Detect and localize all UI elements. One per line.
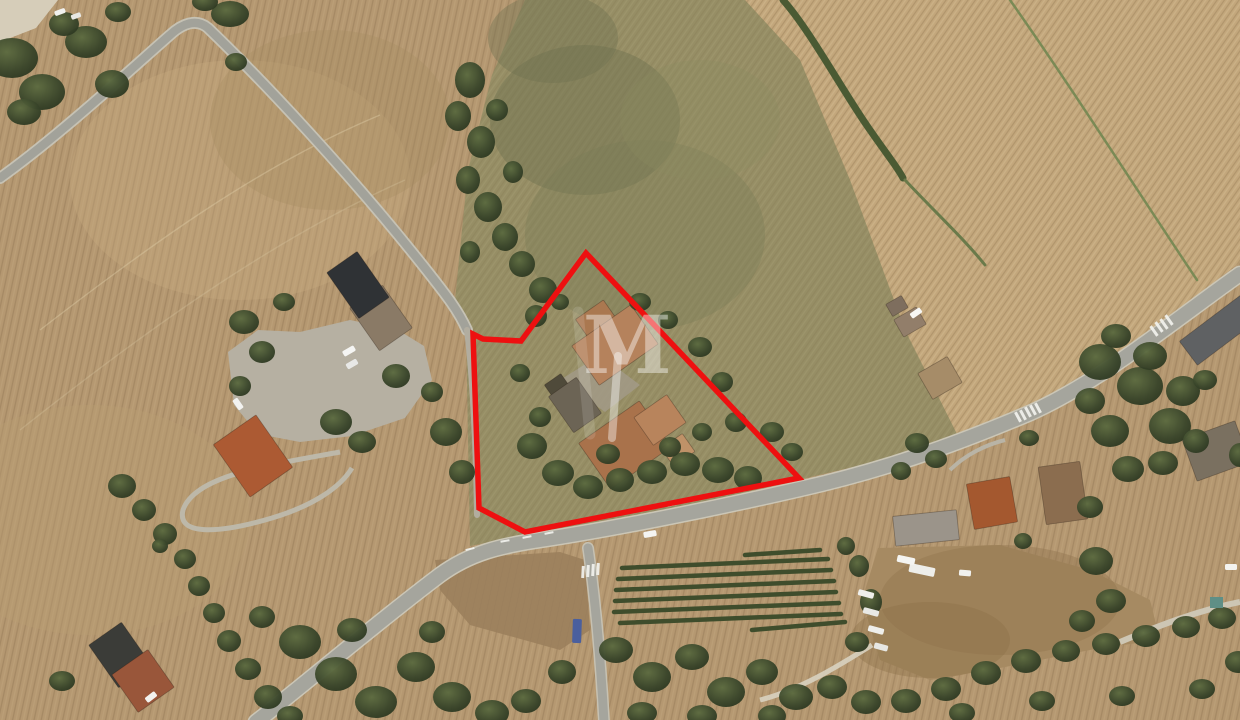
tree (132, 499, 156, 521)
tree (517, 433, 547, 459)
tree (573, 475, 603, 499)
tree (702, 457, 734, 483)
tree (905, 433, 929, 453)
road-marking (586, 565, 590, 577)
tree (849, 555, 869, 577)
tree (529, 407, 551, 427)
tree (1077, 496, 1103, 518)
tree (659, 437, 681, 457)
tree (273, 293, 295, 311)
tree (746, 659, 778, 685)
tree (337, 618, 367, 642)
tree (1079, 547, 1113, 575)
tree (449, 460, 475, 484)
tree (1117, 367, 1163, 405)
watermark-letter: M (583, 298, 672, 392)
tree (467, 126, 495, 158)
tree (1092, 633, 1120, 655)
tree (455, 62, 485, 98)
tree (548, 660, 576, 684)
tree (397, 652, 435, 682)
tree (95, 70, 129, 98)
tree (1014, 533, 1032, 549)
tree (1052, 640, 1080, 662)
tree (108, 474, 136, 498)
tree (779, 684, 813, 710)
tree (1091, 415, 1129, 447)
tree (510, 364, 530, 382)
tree (925, 450, 947, 468)
tree (542, 460, 574, 486)
tree (419, 621, 445, 643)
building-house-grey-south (893, 510, 960, 547)
tree (445, 101, 471, 131)
tree (1075, 388, 1105, 414)
tree (1208, 607, 1236, 629)
tree (456, 166, 480, 194)
tree (1101, 324, 1131, 348)
tree (1069, 610, 1095, 632)
tree (688, 337, 712, 357)
tree (320, 409, 352, 435)
vehicle (572, 619, 582, 643)
tree (675, 644, 709, 670)
tree (279, 625, 321, 659)
tree (1132, 625, 1160, 647)
tree (430, 418, 462, 446)
tree (225, 53, 247, 71)
tree (845, 632, 869, 652)
tree (1096, 589, 1126, 613)
tree (971, 661, 1001, 685)
tree (217, 630, 241, 652)
tree (599, 637, 633, 663)
tree (492, 223, 518, 251)
tree (249, 341, 275, 363)
tree (851, 690, 881, 714)
tree (229, 310, 259, 334)
tree (105, 2, 131, 22)
tree (606, 468, 634, 492)
tree (781, 443, 803, 461)
tree (692, 423, 712, 441)
tree (1109, 686, 1135, 706)
tree (7, 99, 41, 125)
tree (1189, 679, 1215, 699)
tree (474, 192, 502, 222)
tree (931, 677, 961, 701)
tree (1183, 429, 1209, 453)
tree (1193, 370, 1217, 390)
tree (1079, 344, 1121, 380)
tree (382, 364, 410, 388)
tree (348, 431, 376, 453)
tree (1019, 430, 1039, 446)
tree (229, 376, 251, 396)
tree (511, 689, 541, 713)
vehicle (1225, 564, 1237, 570)
tree (188, 576, 210, 596)
tree (837, 537, 855, 555)
tree (433, 682, 471, 712)
tree (633, 662, 671, 692)
tree (509, 251, 535, 277)
tree (315, 657, 357, 691)
tree (174, 549, 196, 569)
vehicle (959, 569, 971, 576)
tree (421, 382, 443, 402)
building-house-brown-southeast (1038, 461, 1088, 524)
tree (1011, 649, 1041, 673)
tree (235, 658, 261, 680)
tree (817, 675, 847, 699)
tree (891, 462, 911, 480)
tree (203, 603, 225, 623)
road-marking (591, 564, 595, 576)
tree (486, 99, 508, 121)
road-marking (581, 566, 585, 578)
tree (503, 161, 523, 183)
building-house-red-southeast (966, 477, 1017, 530)
pool-square (1210, 597, 1223, 608)
tree (49, 671, 75, 691)
tree (249, 606, 275, 628)
road-marking (596, 563, 600, 575)
tree (707, 677, 745, 707)
satellite-photo: M (0, 0, 1240, 720)
tree (152, 539, 168, 553)
tree (460, 241, 480, 263)
tree (254, 685, 282, 709)
tree (1029, 691, 1055, 711)
tree (1148, 451, 1178, 475)
tree (596, 444, 620, 464)
tree (1112, 456, 1144, 482)
tree (1172, 616, 1200, 638)
tree (891, 689, 921, 713)
tree (637, 460, 667, 484)
tree (1133, 342, 1167, 370)
tree (355, 686, 397, 718)
